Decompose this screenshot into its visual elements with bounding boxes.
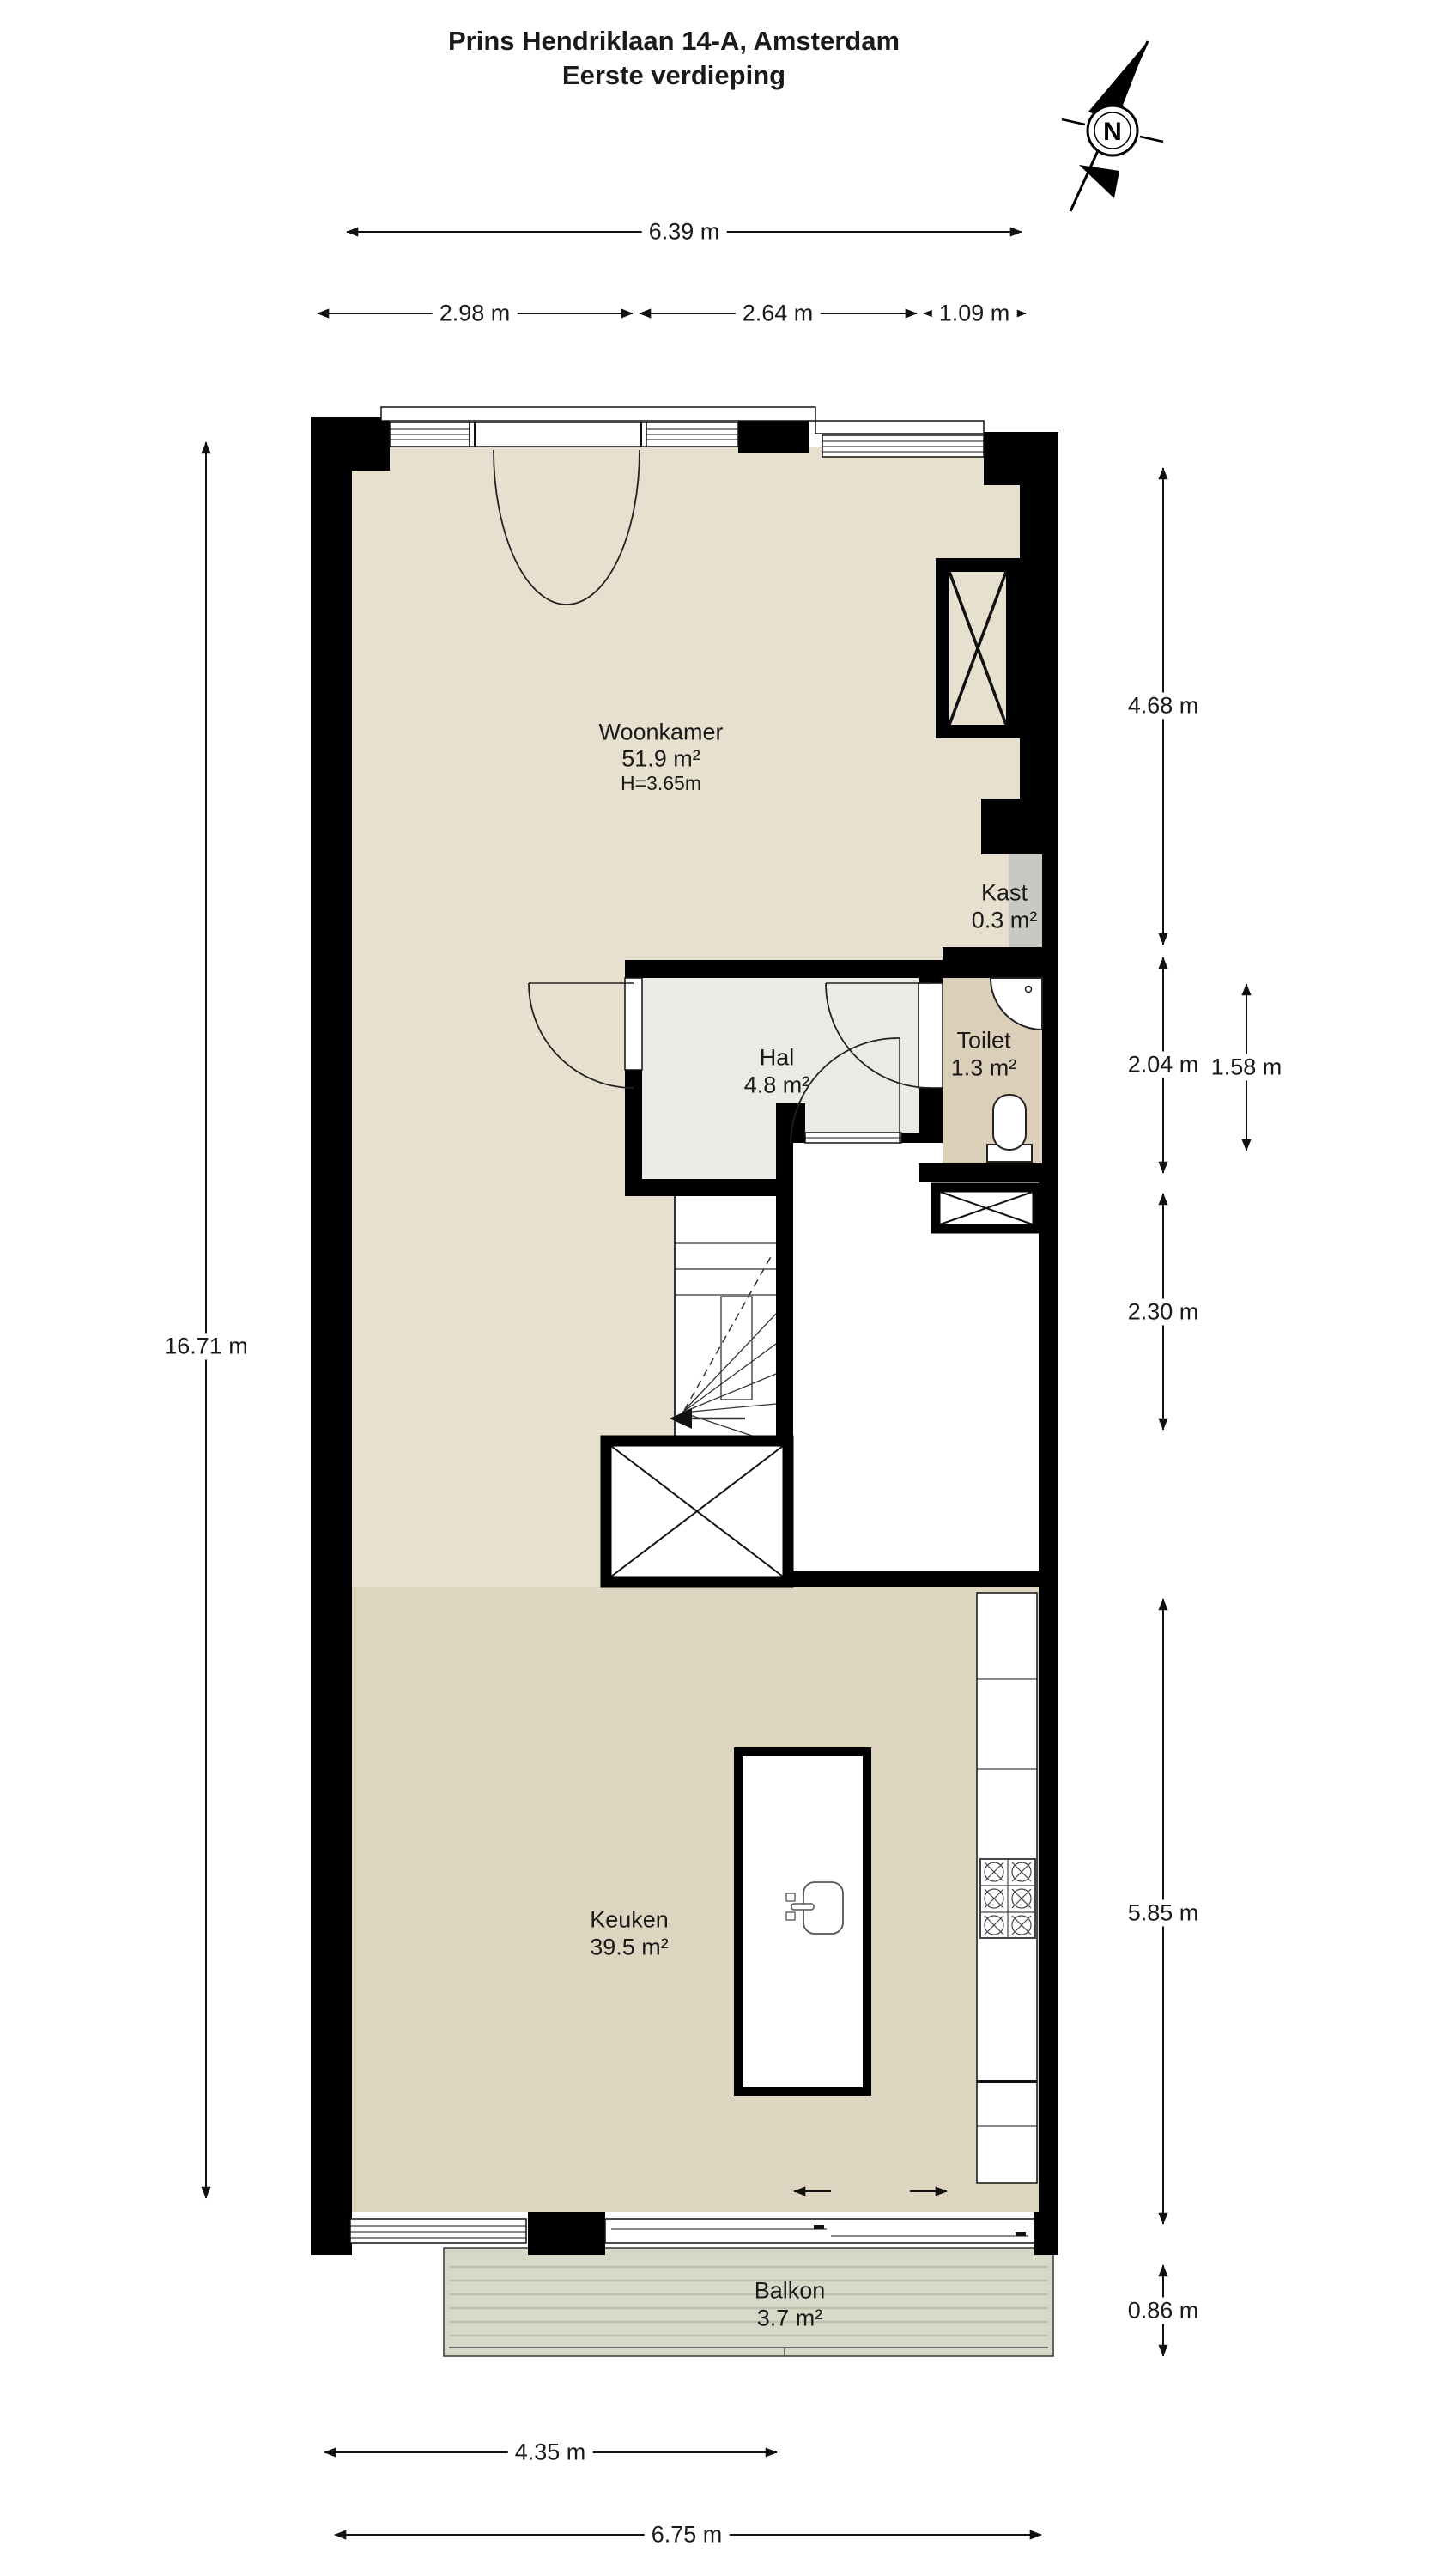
hal-floor-lower: [642, 1143, 776, 1179]
keuken-floor: [352, 1587, 1039, 2212]
toilet-label: Toilet: [956, 1027, 1010, 1054]
wall-right-upper: [1020, 485, 1058, 803]
wall-corner-tr: [984, 432, 1058, 485]
wall-corner-br: [1034, 2212, 1058, 2255]
window-sill-top-right: [815, 421, 984, 434]
island-faucet-tap-1: [786, 1893, 795, 1901]
wall-corner-tl: [311, 417, 390, 471]
window-sill-top-left: [381, 407, 815, 421]
dim-right-woonkamer: 4.68 m: [1121, 692, 1206, 719]
toilet-door-opening: [919, 983, 943, 1088]
dim-right-keuken: 5.85 m: [1121, 1899, 1206, 1926]
dim-top-right: 1.09 m: [932, 300, 1017, 326]
compass: N: [1062, 41, 1163, 211]
dim-bottom-total: 6.75 m: [645, 2521, 730, 2548]
kast-area-label: 0.3 m²: [972, 907, 1038, 933]
hal-west-door-opening: [625, 978, 642, 1070]
dim-right-toilet-section: 2.04 m: [1121, 1051, 1206, 1078]
floorplan-page: N Prins Hendriklaan 14-A, Amsterdam Eers…: [0, 0, 1449, 2576]
slider-handle-1: [814, 2225, 824, 2229]
woonkamer-label: Woonkamer: [598, 719, 723, 745]
island-faucet: [791, 1904, 814, 1910]
keuken-label: Keuken: [590, 1906, 669, 1933]
toilet-area-label: 1.3 m²: [951, 1054, 1017, 1081]
stair-headroom-line: [678, 1254, 773, 1421]
page-title-address: Prins Hendriklaan 14-A, Amsterdam: [448, 26, 900, 57]
woonkamer-floor-step: [352, 947, 943, 960]
woonkamer-strip-lower: [352, 1436, 601, 1587]
sink-faucet: [1026, 987, 1032, 993]
wall-top-pier: [738, 417, 809, 453]
balkon-area-label: 3.7 m²: [757, 2305, 823, 2331]
hal-area-label: 4.8 m²: [744, 1072, 810, 1098]
woonkamer-floor: [352, 447, 1020, 947]
wall-corner-bl: [311, 2212, 352, 2255]
woonkamer-height-label: H=3.65m: [621, 772, 701, 794]
woonkamer-strip-upper: [352, 960, 625, 1196]
compass-tick-east: [1140, 137, 1163, 142]
stair-newel: [721, 1297, 752, 1400]
wall-kast-top: [981, 799, 1058, 854]
balcony-deck: [444, 2248, 1053, 2356]
dim-top-mid: 2.64 m: [736, 300, 821, 326]
dim-right-stairs: 2.30 m: [1121, 1298, 1206, 1325]
woonkamer-strip-mid: [352, 1196, 675, 1436]
wall-right-lower: [1039, 1182, 1058, 2255]
compass-tick-west: [1062, 119, 1085, 125]
woonkamer-area-label: 51.9 m²: [621, 745, 700, 772]
page-title-floor: Eerste verdieping: [562, 60, 785, 91]
toilet-bowl: [993, 1095, 1026, 1150]
staircase: [670, 1196, 776, 1436]
slider-handle-2: [1016, 2232, 1026, 2236]
french-door-frame: [470, 422, 646, 447]
dim-right-toilet: 1.58 m: [1204, 1054, 1289, 1080]
keuken-area-label: 39.5 m²: [590, 1934, 669, 1960]
wall-hal-top: [629, 960, 943, 978]
floorplan-drawing: N: [0, 0, 1449, 2576]
wall-hal-bottom: [625, 1179, 776, 1196]
wall-toilet-top: [943, 947, 1058, 978]
wall-landing-right: [901, 1133, 919, 1143]
wall-toilet-bottom: [919, 1163, 1042, 1182]
dim-left-total: 16.71 m: [157, 1333, 255, 1359]
sliding-door: [605, 2219, 1034, 2243]
hob: [980, 1859, 1035, 1938]
compass-north-label: N: [1103, 118, 1122, 146]
dim-bottom-inner: 4.35 m: [508, 2439, 593, 2465]
wall-right-mid: [1042, 803, 1058, 1182]
balcony: [444, 2248, 1053, 2356]
flue-shaft: [949, 572, 1006, 725]
window-bottom: [350, 2219, 526, 2243]
wall-left: [311, 417, 352, 2255]
island-faucet-tap-2: [786, 1912, 795, 1920]
hal-label: Hal: [760, 1044, 795, 1071]
kitchen-island: [738, 1752, 867, 2092]
kast-label: Kast: [981, 879, 1028, 906]
dim-top-total: 6.39 m: [642, 218, 727, 245]
wall-bottom-pier: [528, 2212, 605, 2255]
balkon-label: Balkon: [755, 2277, 826, 2304]
dim-top-left: 2.98 m: [433, 300, 518, 326]
dim-right-balkon: 0.86 m: [1121, 2297, 1206, 2324]
